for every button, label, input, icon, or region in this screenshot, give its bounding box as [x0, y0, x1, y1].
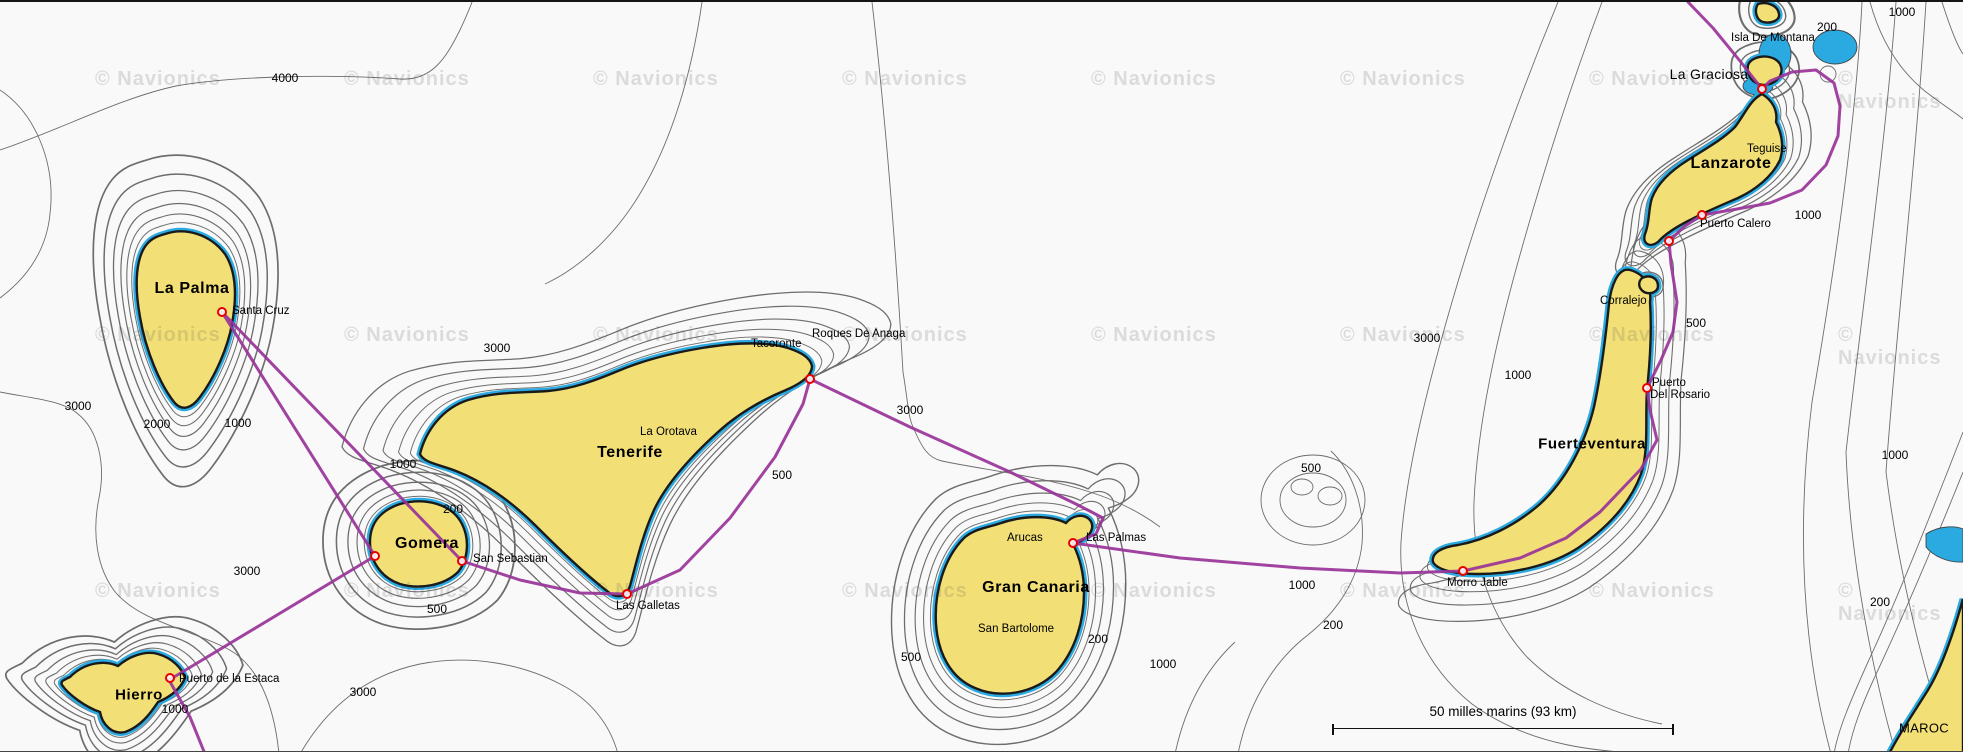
port-label-del-rosario: Del Rosario	[1650, 389, 1710, 401]
island-label-gran-canaria: Gran Canaria	[982, 579, 1090, 597]
depth-label-500m: 500	[1301, 461, 1321, 475]
port-label-puerto: Puerto	[1652, 377, 1686, 389]
depth-label-200m: 200	[1088, 632, 1108, 646]
navionics-watermark: © Navionics	[593, 68, 719, 91]
port-marker-santa-cruz[interactable]	[217, 307, 227, 317]
port-label-la-orotava: La Orotava	[640, 426, 697, 438]
port-label-roques-de-anaga: Roques De Anaga	[812, 328, 905, 340]
scale-bar-tick-left	[1332, 724, 1334, 735]
port-marker-lanzarote-south[interactable]	[1664, 236, 1674, 246]
depth-label-200m: 200	[1870, 595, 1890, 609]
depth-label-1000m: 1000	[1289, 578, 1316, 592]
port-marker-las-galletas[interactable]	[622, 589, 632, 599]
depth-label-1000m: 1000	[390, 457, 417, 471]
island-label-tenerife: Tenerife	[597, 444, 663, 462]
shoal-right-edge	[1926, 527, 1963, 562]
island-label-hierro: Hierro	[115, 687, 163, 704]
port-label-corralejo: Corralejo	[1600, 295, 1647, 307]
depth-label-500m: 500	[1686, 316, 1706, 330]
depth-label-200m: 200	[1817, 20, 1837, 34]
navionics-watermark: © Navionics	[95, 324, 221, 347]
port-label-santa-cruz: Santa Cruz	[232, 305, 290, 317]
island-label-la-palma: La Palma	[154, 280, 229, 298]
depth-label-200m: 200	[1323, 618, 1343, 632]
island-label-fuerteventura: Fuerteventura	[1538, 436, 1646, 453]
port-label-teguise: Teguise	[1747, 143, 1787, 155]
port-marker-puerto-calero[interactable]	[1697, 210, 1707, 220]
island-label-gomera: Gomera	[395, 535, 459, 553]
port-marker-las-palmas[interactable]	[1068, 538, 1078, 548]
port-label-san-bartolome: San Bartolome	[978, 623, 1054, 635]
port-label-morro-jable: Morro Jable	[1447, 577, 1508, 589]
navionics-watermark: © Navionics	[842, 68, 968, 91]
navionics-watermark: © Navionics	[1838, 68, 1963, 114]
navionics-watermark: © Navionics	[344, 580, 470, 603]
depth-label-1000m: 1000	[1150, 657, 1177, 671]
port-marker-morro-jable[interactable]	[1458, 566, 1468, 576]
scale-bar-label: 50 milles marins (93 km)	[1332, 704, 1674, 719]
navionics-watermark: © Navionics	[344, 324, 470, 347]
depth-label-1000m: 1000	[1889, 5, 1916, 19]
navionics-watermark: © Navionics	[1091, 324, 1217, 347]
port-label-las-galletas: Las Galletas	[616, 600, 680, 612]
depth-label-3000m: 3000	[350, 685, 377, 699]
depth-label-500m: 500	[427, 602, 447, 616]
port-label-puerto-de-la-estaca: Puerto de la Estaca	[179, 673, 279, 685]
depth-label-1000m: 1000	[1882, 448, 1909, 462]
depth-label-500m: 500	[772, 468, 792, 482]
depth-label-1000m: 1000	[162, 702, 189, 716]
island-label-lanzarote: Lanzarote	[1691, 155, 1772, 173]
depth-label-3000m: 3000	[897, 403, 924, 417]
navionics-watermark: © Navionics	[95, 68, 221, 91]
island-label-la-graciosa: La Graciosa	[1670, 66, 1749, 82]
depth-label-3000m: 3000	[65, 399, 92, 413]
port-marker-san-sebastian[interactable]	[457, 556, 467, 566]
port-label-isla-de-montana: Isla De Montana	[1731, 32, 1815, 44]
depth-label-4000m: 4000	[272, 71, 299, 85]
scale-bar-line	[1332, 728, 1674, 729]
port-label-las-palmas: Las Palmas	[1086, 532, 1146, 544]
navionics-watermark: © Navionics	[1340, 68, 1466, 91]
shoal-bank-northeast	[1813, 30, 1857, 64]
navionics-watermark: © Navionics	[1838, 324, 1963, 370]
port-label-puerto-calero: Puerto Calero	[1700, 218, 1771, 230]
port-label-tacoronte: Tacoronte	[751, 338, 802, 350]
navionics-watermark: © Navionics	[1091, 68, 1217, 91]
navionics-watermark: © Navionics	[593, 324, 719, 347]
depth-label-1000m: 1000	[1795, 208, 1822, 222]
navionics-watermark: © Navionics	[1589, 580, 1715, 603]
scale-bar: 50 milles marins (93 km)	[1332, 704, 1674, 729]
port-marker-puerto-de-la-estaca[interactable]	[165, 673, 175, 683]
island-la-graciosa	[1748, 57, 1782, 85]
navionics-watermark: © Navionics	[842, 580, 968, 603]
depth-label-3000m: 3000	[1414, 331, 1441, 345]
port-marker-roques-de-anaga[interactable]	[805, 374, 815, 384]
island-isla-de-montana	[1756, 3, 1779, 22]
nautical-chart-canary-islands: © Navionics© Navionics© Navionics© Navio…	[0, 0, 1963, 752]
depth-label-200m: 200	[443, 502, 463, 516]
navionics-watermark: © Navionics	[1838, 580, 1963, 626]
island-la-palma	[137, 231, 235, 407]
port-marker-puerto-del-rosario[interactable]	[1642, 383, 1652, 393]
depth-label-1000m: 1000	[225, 416, 252, 430]
scale-bar-tick-right	[1672, 724, 1674, 735]
navionics-watermark: © Navionics	[95, 580, 221, 603]
port-label-san-sebastian: San Sebastian	[473, 553, 548, 565]
islet-lobos	[1639, 276, 1658, 293]
port-label-arucas: Arucas	[1007, 532, 1043, 544]
depth-label-3000m: 3000	[484, 341, 511, 355]
navionics-watermark: © Navionics	[344, 68, 470, 91]
depth-label-2000m: 2000	[144, 417, 171, 431]
island-label-maroc: MAROC	[1899, 721, 1949, 736]
navionics-watermark: © Navionics	[1340, 324, 1466, 347]
port-marker-la-graciosa-strait[interactable]	[1757, 84, 1767, 94]
navionics-watermark: © Navionics	[1091, 580, 1217, 603]
port-marker-gomera-west[interactable]	[370, 551, 380, 561]
depth-label-3000m: 3000	[234, 564, 261, 578]
island-fuerteventura	[1433, 270, 1651, 574]
depth-label-1000m: 1000	[1505, 368, 1532, 382]
depth-label-500m: 500	[901, 650, 921, 664]
